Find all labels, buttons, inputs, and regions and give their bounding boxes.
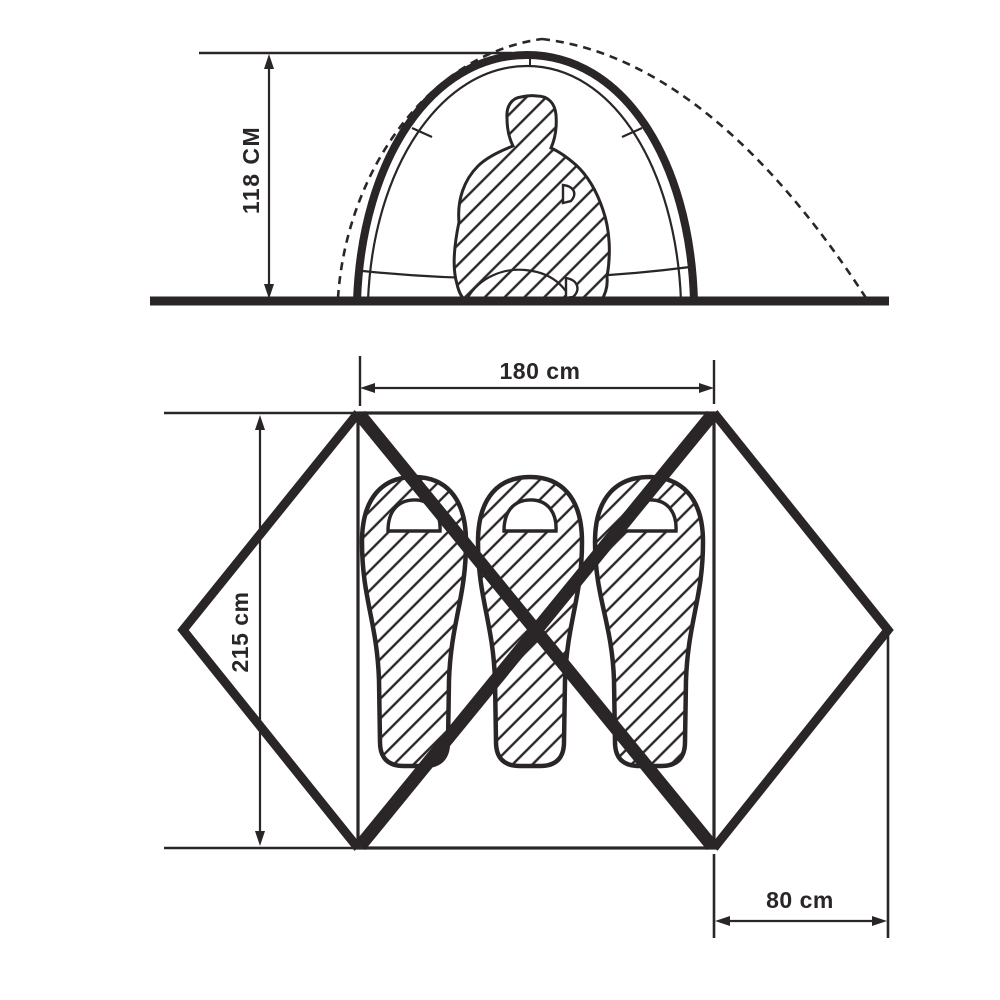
hand-notch <box>563 185 574 203</box>
depth-dimension-label: 215 cm <box>227 591 253 672</box>
width-dimension-label: 180 cm <box>499 358 580 384</box>
tent-dimensions-diagram: 118 CM 180 cm <box>0 0 1000 1000</box>
diagram-canvas: 118 CM 180 cm <box>0 0 1000 1000</box>
height-dimension-label: 118 CM <box>238 126 264 214</box>
vestibule-dimension-label: 80 cm <box>766 887 834 913</box>
